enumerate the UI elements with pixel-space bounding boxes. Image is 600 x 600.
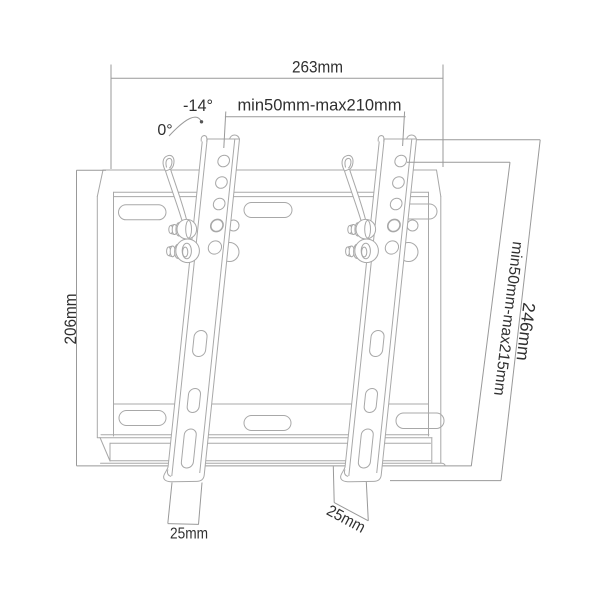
svg-text:-14°: -14°	[183, 97, 213, 115]
svg-text:0°: 0°	[157, 122, 172, 139]
svg-text:25mm: 25mm	[170, 526, 208, 543]
svg-text:206mm: 206mm	[61, 294, 80, 345]
svg-text:263mm: 263mm	[292, 58, 343, 77]
svg-text:min50mm-max210mm: min50mm-max210mm	[237, 96, 401, 114]
